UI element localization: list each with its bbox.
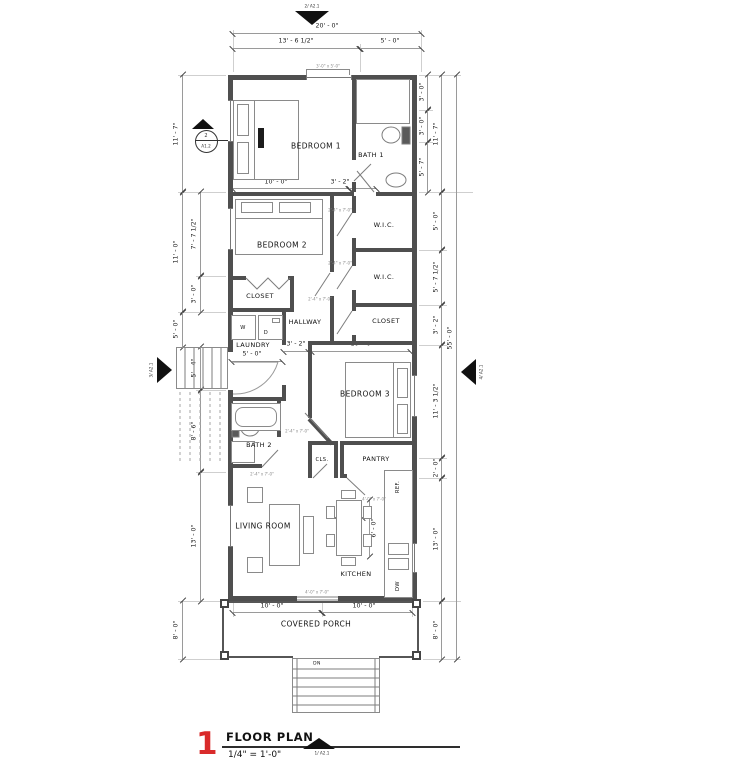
- nightstand: [258, 128, 264, 148]
- porch-post: [220, 599, 229, 608]
- pillow: [279, 202, 311, 213]
- room-label-laundry: LAUNDRY: [236, 341, 270, 349]
- front-steps: [292, 658, 380, 713]
- toilet-tank: [402, 127, 410, 144]
- door-leaf: [357, 171, 374, 192]
- marker-label-right: 4/ A2.1: [479, 365, 484, 380]
- door-leaf: [315, 273, 330, 296]
- appliance-label-dw: DW: [395, 581, 401, 591]
- chair: [326, 534, 335, 547]
- elevation-marker-left: [157, 357, 172, 383]
- door-tag: 2'-4" x 7'-0": [328, 261, 352, 266]
- appliance-label-ref: REF.: [395, 481, 401, 493]
- drawing-scale: 1/4" = 1'-0": [228, 750, 281, 760]
- room-label-pantry: PANTRY: [362, 455, 389, 463]
- covered-porch-outline: [222, 601, 419, 658]
- angled-wall: [309, 419, 332, 444]
- marker-label-left: 3/ A2.1: [149, 363, 154, 378]
- pillow: [397, 404, 408, 434]
- toilet: [382, 127, 400, 143]
- room-label-living: LIVING ROOM: [235, 522, 290, 531]
- room-label-bedroom3: BEDROOM 3: [340, 390, 390, 399]
- appliance-label-dryer: D: [264, 330, 268, 336]
- marker-label-top: 2/ A2.1: [305, 4, 320, 9]
- elevation-marker-top: [295, 11, 329, 25]
- room-label-hallway: HALLWAY: [289, 318, 322, 326]
- porch-post: [220, 651, 229, 660]
- coffee-table: [303, 516, 314, 554]
- porch-post: [412, 651, 421, 660]
- room-label-closet1: CLOSET: [246, 292, 274, 300]
- room-label-wic1: W.I.C.: [374, 221, 395, 229]
- bifold-door: [246, 278, 290, 289]
- drawing-title: FLOOR PLAN: [226, 730, 313, 744]
- room-label-bedroom1: BEDROOM 1: [291, 142, 341, 151]
- chair: [363, 506, 372, 519]
- room-label-closet2: CLOSET: [372, 317, 400, 325]
- room-label-bedroom2: BEDROOM 2: [257, 241, 307, 250]
- pillow: [241, 202, 273, 213]
- door-leaf: [313, 464, 327, 478]
- chair: [341, 490, 356, 499]
- bathtub-inner: [235, 407, 277, 427]
- pillow: [237, 104, 249, 136]
- room-label-porch: COVERED PORCH: [281, 620, 351, 629]
- room-label-wic2: W.I.C.: [374, 273, 395, 281]
- room-label-cls: CLS.: [315, 457, 328, 463]
- section-callout-arrow: [192, 119, 214, 129]
- chair: [363, 534, 372, 547]
- door-arc: [233, 362, 278, 394]
- room-label-bath1: BATH 1: [358, 151, 384, 159]
- door-leaf: [337, 266, 352, 289]
- shower: [356, 79, 410, 124]
- drawing-number: 1: [196, 729, 218, 760]
- door-leaf: [305, 413, 328, 438]
- door-leaf: [337, 213, 352, 236]
- door-tag: 2'-4" x 7'-0": [328, 208, 352, 213]
- sofa: [269, 504, 300, 566]
- blanket-line: [236, 218, 322, 219]
- floor-plan-sheet: 20' - 0" 13' - 6 1/2" 5' - 0" 11' - 7" 1…: [0, 0, 733, 768]
- door-tag: 4'-0" x 7'-0": [362, 497, 386, 502]
- room-label-bath2: BATH 2: [246, 441, 272, 449]
- kitchen-sink: [388, 558, 409, 570]
- door-tag: 2'-4" x 7'-0": [308, 297, 332, 302]
- porch-post: [412, 599, 421, 608]
- window-tag: 3'-0" x 5'-0": [316, 64, 340, 69]
- door-leaf: [337, 311, 352, 334]
- elevation-marker-right: [461, 359, 476, 385]
- side-table: [247, 557, 263, 573]
- chair: [326, 506, 335, 519]
- blanket-line: [254, 101, 255, 179]
- section-callout-line: [195, 140, 228, 141]
- pillow: [237, 142, 249, 174]
- side-stairs: [176, 347, 228, 389]
- chair: [341, 557, 356, 566]
- kitchen-sink: [388, 543, 409, 555]
- sink: [386, 173, 406, 187]
- marker-label-bottom: 1/ A2.1: [315, 751, 330, 756]
- door-tag: 2'-4" x 7'-0": [285, 429, 309, 434]
- room-label-kitchen: KITCHEN: [341, 570, 372, 578]
- section-number: 2: [204, 133, 207, 139]
- blanket-line: [393, 363, 394, 437]
- view-marker-bottom: [303, 738, 335, 749]
- dryer-panel: [272, 318, 280, 323]
- appliance-label-washer: W: [240, 325, 246, 331]
- title-underline: [222, 746, 460, 748]
- side-table: [247, 487, 263, 503]
- door-leaf: [262, 450, 278, 467]
- section-sheet: A1.2: [201, 144, 211, 149]
- steps-down-label: DN: [313, 662, 321, 667]
- door-tag: 2'-4" x 7'-0": [250, 472, 274, 477]
- dining-table: [336, 500, 362, 556]
- pillow: [397, 368, 408, 398]
- door-tag: 4'-0" x 7'-0": [305, 590, 329, 595]
